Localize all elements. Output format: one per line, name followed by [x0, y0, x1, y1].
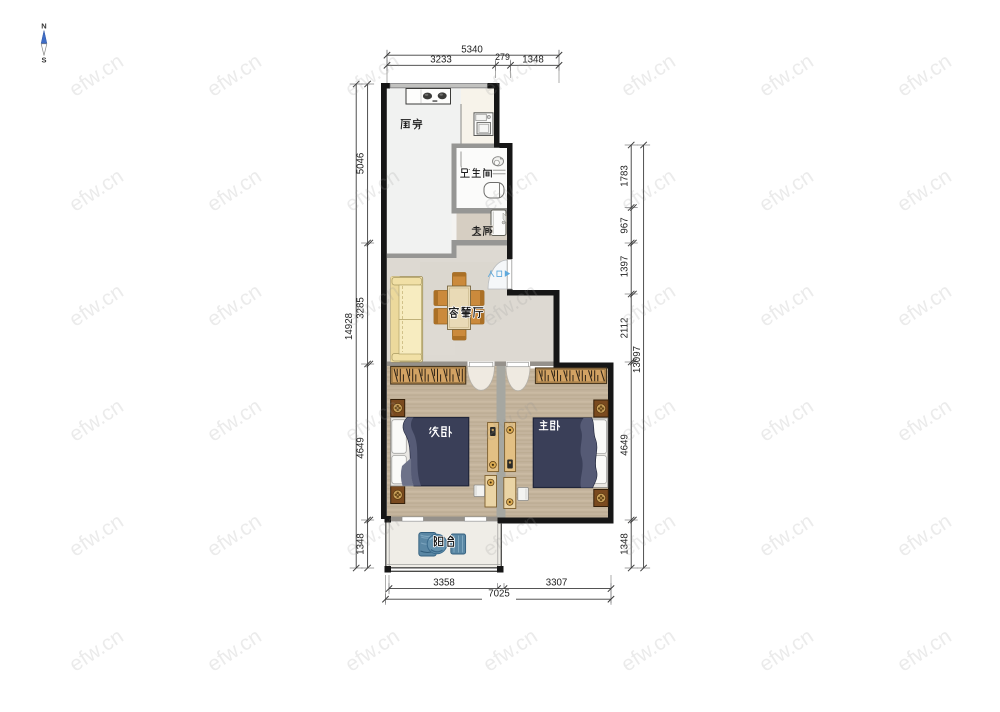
svg-text:efw.cn: efw.cn — [203, 165, 265, 217]
svg-text:7025: 7025 — [488, 588, 510, 599]
svg-text:3307: 3307 — [546, 578, 568, 589]
svg-text:efw.cn: efw.cn — [203, 395, 265, 447]
svg-text:efw.cn: efw.cn — [479, 50, 541, 102]
svg-text:efw.cn: efw.cn — [65, 50, 127, 102]
svg-text:efw.cn: efw.cn — [893, 280, 955, 332]
svg-text:13097: 13097 — [632, 346, 643, 373]
svg-text:efw.cn: efw.cn — [617, 395, 679, 447]
svg-text:efw.cn: efw.cn — [893, 165, 955, 217]
svg-text:279: 279 — [495, 52, 510, 62]
svg-text:5340: 5340 — [461, 44, 483, 55]
svg-text:efw.cn: efw.cn — [893, 625, 955, 677]
svg-text:efw.cn: efw.cn — [203, 510, 265, 562]
svg-text:5046: 5046 — [356, 153, 367, 175]
svg-text:efw.cn: efw.cn — [65, 280, 127, 332]
svg-text:efw.cn: efw.cn — [341, 625, 403, 677]
svg-text:efw.cn: efw.cn — [65, 165, 127, 217]
svg-text:efw.cn: efw.cn — [65, 510, 127, 562]
svg-text:efw.cn: efw.cn — [479, 625, 541, 677]
svg-text:efw.cn: efw.cn — [617, 625, 679, 677]
svg-text:3358: 3358 — [433, 578, 455, 589]
svg-text:efw.cn: efw.cn — [755, 280, 817, 332]
svg-text:967: 967 — [619, 217, 630, 233]
svg-text:efw.cn: efw.cn — [755, 165, 817, 217]
svg-text:efw.cn: efw.cn — [893, 50, 955, 102]
svg-text:efw.cn: efw.cn — [617, 50, 679, 102]
svg-text:efw.cn: efw.cn — [203, 280, 265, 332]
svg-text:efw.cn: efw.cn — [203, 50, 265, 102]
svg-text:efw.cn: efw.cn — [893, 395, 955, 447]
svg-text:efw.cn: efw.cn — [893, 510, 955, 562]
svg-text:S: S — [41, 56, 46, 65]
svg-text:N: N — [41, 22, 46, 31]
svg-text:efw.cn: efw.cn — [755, 395, 817, 447]
svg-text:efw.cn: efw.cn — [617, 280, 679, 332]
svg-text:efw.cn: efw.cn — [65, 395, 127, 447]
svg-text:efw.cn: efw.cn — [203, 625, 265, 677]
svg-text:1783: 1783 — [619, 165, 630, 187]
svg-text:1397: 1397 — [619, 256, 630, 278]
svg-text:efw.cn: efw.cn — [755, 510, 817, 562]
svg-text:efw.cn: efw.cn — [755, 625, 817, 677]
svg-text:efw.cn: efw.cn — [65, 625, 127, 677]
svg-text:efw.cn: efw.cn — [755, 50, 817, 102]
svg-text:efw.cn: efw.cn — [617, 510, 679, 562]
svg-text:3233: 3233 — [430, 54, 452, 65]
